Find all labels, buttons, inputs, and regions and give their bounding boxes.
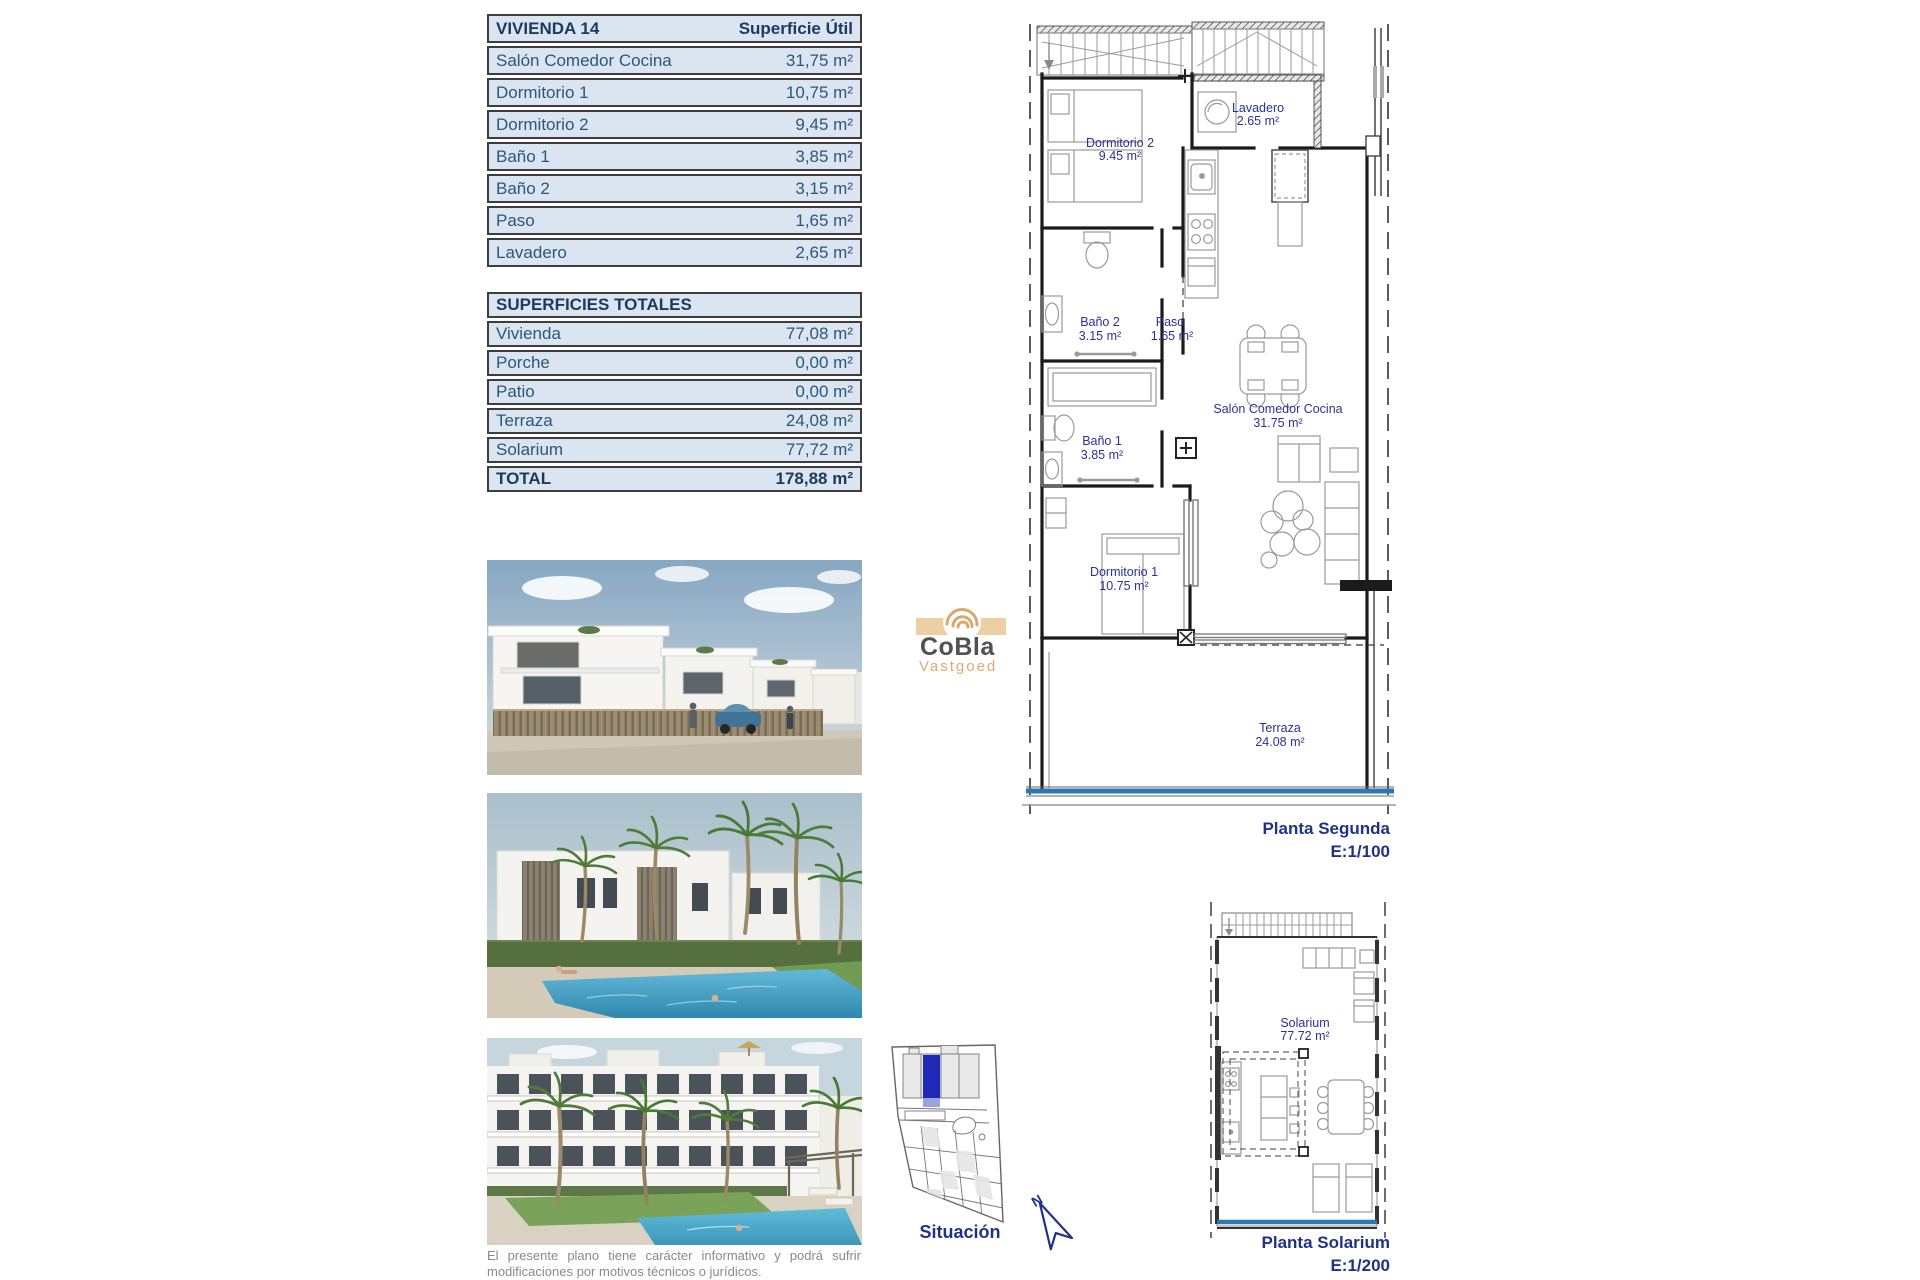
stairs: [1037, 22, 1324, 81]
kitchen-fixtures: [1185, 150, 1218, 298]
outdoor-kitchen: [1221, 1062, 1241, 1154]
row-label: Paso: [496, 211, 535, 231]
north-arrow-icon: N: [1026, 1188, 1078, 1252]
room-label: Terraza: [1259, 721, 1301, 735]
room-label: Dormitorio 1: [1090, 565, 1158, 579]
table-row: Dormitorio 110,75 m²: [487, 78, 862, 107]
row-label: Porche: [496, 353, 550, 373]
room-area: 31.75 m²: [1253, 416, 1302, 430]
vivienda-table-rows: Salón Comedor Cocina31,75 m²Dormitorio 1…: [487, 46, 862, 267]
row-label: Terraza: [496, 411, 553, 431]
row-value: 3,15 m²: [795, 179, 853, 199]
table-row: Solarium77,72 m²: [487, 437, 862, 463]
cobla-logo: CoBla Vastgoed: [912, 596, 1028, 680]
plan-caption-title: Planta Solarium: [1050, 1232, 1390, 1255]
render-photo-pool: [487, 793, 862, 1018]
plan-caption-solarium: Planta Solarium E:1/200: [1050, 1232, 1390, 1278]
row-label: Baño 2: [496, 179, 550, 199]
disclaimer-text: El presente plano tiene carácter informa…: [487, 1248, 861, 1280]
row-value: 9,45 m²: [795, 115, 853, 135]
room-label: Solarium: [1280, 1016, 1329, 1030]
vivienda-table-header: VIVIENDA 14 Superficie Útil: [487, 14, 862, 43]
page: VIVIENDA 14 Superficie Útil Salón Comedo…: [0, 0, 1920, 1280]
plan-caption-title: Planta Segunda: [1050, 818, 1390, 841]
room-label: Salón Comedor Cocina: [1213, 402, 1342, 416]
row-label: Salón Comedor Cocina: [496, 51, 672, 71]
table-row: Lavadero2,65 m²: [487, 238, 862, 267]
table-title: SUPERFICIES TOTALES: [496, 295, 692, 315]
stairs: [1222, 913, 1352, 937]
row-value: 0,00 m²: [795, 382, 853, 402]
situacion-label: Situación: [885, 1222, 1035, 1243]
total-value: 178,88 m²: [776, 469, 854, 489]
row-value: 77,08 m²: [786, 324, 853, 344]
row-label: Dormitorio 1: [496, 83, 589, 103]
washer-icon: [1198, 92, 1236, 132]
table-row: Vivienda77,08 m²: [487, 321, 862, 347]
solarium-furniture: [1261, 948, 1374, 1212]
row-value: 10,75 m²: [786, 83, 853, 103]
row-label: Dormitorio 2: [496, 115, 589, 135]
room-area: 1.65 m²: [1151, 329, 1193, 343]
table-column-header: Superficie Útil: [739, 19, 853, 39]
room-area: 9.45 m²: [1099, 149, 1141, 163]
room-area: 24.08 m²: [1255, 735, 1304, 749]
totales-table-rows: Vivienda77,08 m²Porche0,00 m²Patio0,00 m…: [487, 321, 862, 463]
render-photo-building: [487, 1038, 862, 1245]
row-value: 24,08 m²: [786, 411, 853, 431]
row-value: 31,75 m²: [786, 51, 853, 71]
room-label: Baño 1: [1082, 434, 1122, 448]
table-row: Patio0,00 m²: [487, 379, 862, 405]
living-room-furniture: [1240, 325, 1359, 584]
totales-table: SUPERFICIES TOTALES Vivienda77,08 m²Porc…: [487, 292, 862, 495]
room-label: Baño 2: [1080, 315, 1120, 329]
highlighted-plot: [923, 1055, 940, 1098]
table-row: Baño 13,85 m²: [487, 142, 862, 171]
row-label: Solarium: [496, 440, 563, 460]
row-label: Vivienda: [496, 324, 561, 344]
kitchen-island: [1272, 150, 1308, 246]
row-label: Baño 1: [496, 147, 550, 167]
situacion-siteplan: [885, 1038, 1010, 1233]
room-label: Lavadero: [1232, 101, 1284, 115]
total-row: TOTAL 178,88 m²: [487, 466, 862, 492]
table-row: Baño 23,15 m²: [487, 174, 862, 203]
table-row: Dormitorio 29,45 m²: [487, 110, 862, 139]
logo-subtitle: Vastgoed: [919, 658, 997, 675]
table-row: Paso1,65 m²: [487, 206, 862, 235]
room-area: 3.15 m²: [1079, 329, 1121, 343]
row-value: 3,85 m²: [795, 147, 853, 167]
room-label: Paso: [1156, 315, 1185, 329]
render-photo-street: [487, 560, 862, 775]
row-value: 2,65 m²: [795, 243, 853, 263]
room-label: Dormitorio 2: [1086, 136, 1154, 150]
plan-caption-scale: E:1/200: [1050, 1255, 1390, 1278]
table-title: VIVIENDA 14: [496, 19, 599, 39]
vivienda-table: VIVIENDA 14 Superficie Útil Salón Comedo…: [487, 14, 862, 270]
total-label: TOTAL: [496, 469, 551, 489]
room-area: 3.85 m²: [1081, 448, 1123, 462]
plan-caption-scale: E:1/100: [1050, 841, 1390, 864]
table-row: Porche0,00 m²: [487, 350, 862, 376]
plan-caption-segunda: Planta Segunda E:1/100: [1050, 818, 1390, 864]
room-area: 10.75 m²: [1099, 579, 1148, 593]
room-area: 2.65 m²: [1237, 114, 1279, 128]
bathroom1-fixtures: [1042, 368, 1156, 486]
row-label: Lavadero: [496, 243, 567, 263]
row-value: 1,65 m²: [795, 211, 853, 231]
row-value: 77,72 m²: [786, 440, 853, 460]
row-label: Patio: [496, 382, 535, 402]
totales-table-header: SUPERFICIES TOTALES: [487, 292, 862, 318]
table-row: Terraza24,08 m²: [487, 408, 862, 434]
table-row: Salón Comedor Cocina31,75 m²: [487, 46, 862, 75]
floorplan-solarium: Solarium 77.72 m²: [1203, 896, 1393, 1246]
floorplan-planta-segunda: Dormitorio 2 9.45 m² Lavadero 2.65 m² Ba…: [1022, 8, 1400, 858]
row-value: 0,00 m²: [795, 353, 853, 373]
room-area: 77.72 m²: [1280, 1029, 1329, 1043]
